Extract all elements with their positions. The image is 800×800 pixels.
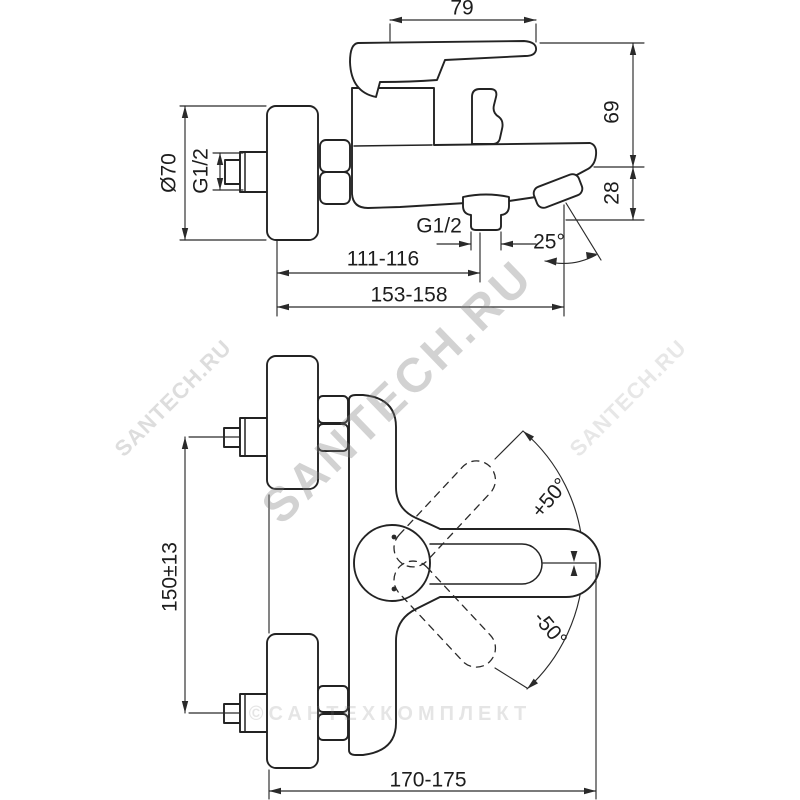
side-hex-nut-b — [320, 172, 350, 204]
watermarks: SANTECH.RU SANTECH.RU SANTECH.RU ©САНТЕХ… — [110, 250, 692, 725]
dim-69-label: 69 — [601, 100, 624, 123]
bath-mixer-drawing: 79 69 28 Ø70 — [0, 0, 800, 800]
dim-minus50-label: -50° — [529, 607, 572, 651]
shower-outlet — [463, 195, 509, 231]
dim-79-label: 79 — [450, 0, 473, 20]
diverter-knob — [472, 89, 503, 144]
watermark-copyright: ©САНТЕХКОМПЛЕКТ — [249, 703, 532, 725]
side-view — [225, 41, 596, 240]
side-wall-union — [225, 106, 350, 240]
side-lever-handle — [350, 41, 536, 97]
dim-25deg: 25° — [533, 203, 601, 266]
upper-union-nipple — [240, 418, 268, 456]
dim-d70-label: Ø70 — [158, 153, 181, 193]
dim-g12-outlet-label: G1/2 — [416, 215, 462, 238]
side-escutcheon — [267, 106, 318, 240]
dim-150: 150±13 — [159, 437, 241, 713]
dim-25deg-label: 25° — [533, 231, 565, 254]
dim-plus50-label: +50° — [527, 474, 573, 523]
dim-g12-wall-label: G1/2 — [190, 148, 213, 194]
side-union-collar — [225, 160, 240, 184]
dim-153-158-label: 153-158 — [370, 284, 447, 307]
side-hex-nut-a — [320, 140, 350, 172]
dim-79: 79 — [390, 0, 536, 42]
watermark-left: SANTECH.RU — [110, 335, 237, 462]
dim-28-label: 28 — [601, 181, 624, 204]
watermark-right: SANTECH.RU — [565, 335, 692, 462]
plan-lower-union — [224, 634, 348, 768]
lower-escutcheon — [267, 634, 318, 768]
dim-111-116-label: 111-116 — [347, 248, 419, 271]
dim-170-175-label: 170-175 — [389, 769, 466, 792]
technical-drawing-page: 79 69 28 Ø70 — [0, 0, 800, 800]
dim-150-label: 150±13 — [159, 542, 182, 612]
